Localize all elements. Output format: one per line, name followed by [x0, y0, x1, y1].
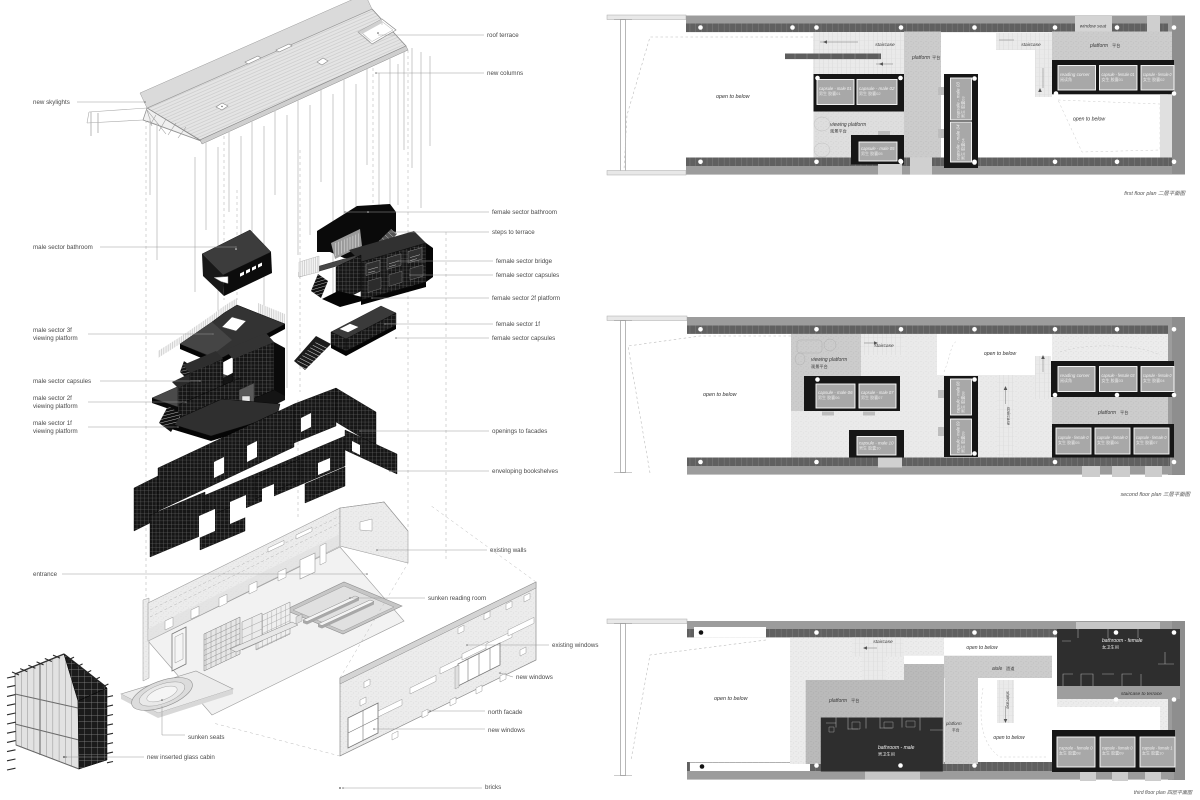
svg-text:男生 胶囊06: 男生 胶囊06: [818, 394, 840, 400]
svg-text:entrance: entrance: [33, 571, 58, 578]
svg-text:male sector 1f: male sector 1f: [33, 420, 72, 427]
svg-text:staircase: staircase: [875, 42, 895, 48]
svg-text:女卫生间: 女卫生间: [1102, 644, 1119, 651]
svg-text:观景平台: 观景平台: [811, 363, 828, 370]
svg-text:sunken seats: sunken seats: [188, 734, 224, 741]
svg-text:viewing platform: viewing platform: [33, 335, 78, 342]
svg-text:platform: platform: [828, 698, 847, 704]
svg-text:steps to terrace: steps to terrace: [492, 229, 535, 236]
svg-text:platform: platform: [945, 721, 962, 726]
svg-text:open to below: open to below: [966, 645, 998, 651]
svg-text:女生 胶囊10: 女生 胶囊10: [1142, 750, 1164, 756]
svg-text:staircase: staircase: [874, 343, 894, 349]
svg-text:平台: 平台: [851, 697, 859, 704]
svg-text:staircase: staircase: [873, 639, 893, 645]
svg-text:open to below: open to below: [703, 392, 738, 398]
svg-text:過道: 過道: [1006, 665, 1015, 672]
svg-text:male sector 2f: male sector 2f: [33, 395, 72, 402]
svg-text:男生 胶囊07: 男生 胶囊07: [861, 394, 883, 400]
svg-text:new skylights: new skylights: [33, 99, 70, 106]
svg-text:viewing platform: viewing platform: [830, 122, 866, 128]
svg-text:女生 胶囊04: 女生 胶囊04: [1143, 377, 1165, 383]
svg-text:bathroom - female: bathroom - female: [1102, 638, 1143, 644]
svg-text:男生 胶囊02: 男生 胶囊02: [859, 90, 881, 96]
svg-text:female sector capsules: female sector capsules: [492, 335, 555, 342]
svg-text:平台: 平台: [952, 728, 960, 733]
svg-text:female sector capsules: female sector capsules: [496, 272, 559, 279]
svg-text:existing walls: existing walls: [490, 547, 526, 554]
svg-text:male sector bathroom: male sector bathroom: [33, 244, 93, 251]
svg-text:openings to facades: openings to facades: [492, 428, 547, 435]
svg-text:平台: 平台: [1120, 409, 1128, 416]
svg-text:男卫生间: 男卫生间: [878, 751, 895, 758]
svg-text:平台: 平台: [1112, 42, 1120, 49]
svg-text:bathroom - male: bathroom - male: [878, 745, 915, 751]
svg-text:男生 胶囊05: 男生 胶囊05: [861, 150, 883, 156]
svg-text:staircase: staircase: [1006, 407, 1011, 426]
svg-text:男生 胶囊09: 男生 胶囊09: [959, 431, 965, 453]
svg-text:platform: platform: [1097, 410, 1116, 416]
svg-text:third floor plan 四层平面图: third floor plan 四层平面图: [1134, 790, 1193, 796]
svg-text:女生 胶囊08: 女生 胶囊08: [1059, 750, 1081, 756]
svg-text:new columns: new columns: [487, 70, 523, 77]
svg-text:female sector 2f platform: female sector 2f platform: [492, 295, 560, 302]
svg-text:viewing platform: viewing platform: [33, 428, 78, 435]
svg-text:viewing platform: viewing platform: [811, 357, 847, 363]
svg-text:女生 胶囊09: 女生 胶囊09: [1102, 750, 1124, 756]
svg-text:平台: 平台: [932, 54, 940, 61]
svg-text:new windows: new windows: [516, 674, 553, 681]
svg-text:second floor plan 三层平面图: second floor plan 三层平面图: [1120, 491, 1191, 498]
svg-text:new windows: new windows: [488, 727, 525, 734]
svg-text:platform: platform: [1089, 43, 1108, 49]
svg-text:观景平台: 观景平台: [830, 128, 847, 135]
svg-text:女生 胶囊01: 女生 胶囊01: [1102, 76, 1124, 82]
svg-text:阅读角: 阅读角: [1060, 377, 1072, 383]
svg-text:existing windows: existing windows: [552, 642, 598, 649]
svg-text:open to below: open to below: [716, 94, 751, 100]
svg-text:open to below: open to below: [1073, 117, 1107, 123]
svg-text:female sector 1f: female sector 1f: [496, 321, 540, 328]
svg-text:enveloping bookshelves: enveloping bookshelves: [492, 468, 558, 475]
svg-text:open to below: open to below: [993, 735, 1025, 741]
svg-text:window seat: window seat: [1080, 24, 1107, 30]
svg-text:platform: platform: [911, 55, 930, 61]
svg-text:male sector capsules: male sector capsules: [33, 378, 91, 385]
svg-text:sunken reading room: sunken reading room: [428, 595, 486, 602]
svg-text:女生 胶囊06: 女生 胶囊06: [1097, 439, 1119, 445]
svg-text:female sector bridge: female sector bridge: [496, 258, 553, 265]
svg-text:男生 胶囊03: 男生 胶囊03: [959, 96, 965, 118]
svg-text:first floor plan 二层平面图: first floor plan 二层平面图: [1124, 190, 1186, 197]
svg-text:male sector 3f: male sector 3f: [33, 327, 72, 334]
svg-text:女生 胶囊03: 女生 胶囊03: [1102, 377, 1124, 383]
svg-text:roof terrace: roof terrace: [487, 32, 519, 39]
svg-text:viewing platform: viewing platform: [33, 403, 78, 410]
svg-text:男生 胶囊01: 男生 胶囊01: [819, 90, 841, 96]
svg-text:staircase: staircase: [1006, 691, 1011, 709]
svg-text:bricks: bricks: [485, 784, 501, 791]
svg-text:north facade: north facade: [488, 709, 523, 716]
svg-text:open to below: open to below: [984, 351, 1018, 357]
svg-text:aisle: aisle: [992, 666, 1003, 672]
svg-text:阅读角: 阅读角: [1060, 76, 1072, 82]
svg-text:女生 胶囊02: 女生 胶囊02: [1143, 76, 1165, 82]
svg-text:staircase to terrace: staircase to terrace: [1121, 691, 1162, 697]
svg-text:女生 胶囊07: 女生 胶囊07: [1136, 439, 1158, 445]
svg-text:female sector bathroom: female sector bathroom: [492, 209, 557, 216]
svg-text:staircase: staircase: [1021, 42, 1041, 48]
svg-text:new inserted glass cabin: new inserted glass cabin: [147, 754, 215, 761]
svg-text:男生 胶囊08: 男生 胶囊08: [959, 391, 965, 413]
svg-text:男生 胶囊04: 男生 胶囊04: [959, 138, 965, 160]
svg-text:女生 胶囊05: 女生 胶囊05: [1058, 439, 1080, 445]
svg-text:open to below: open to below: [714, 696, 749, 702]
svg-text:男生 胶囊10: 男生 胶囊10: [859, 444, 881, 450]
